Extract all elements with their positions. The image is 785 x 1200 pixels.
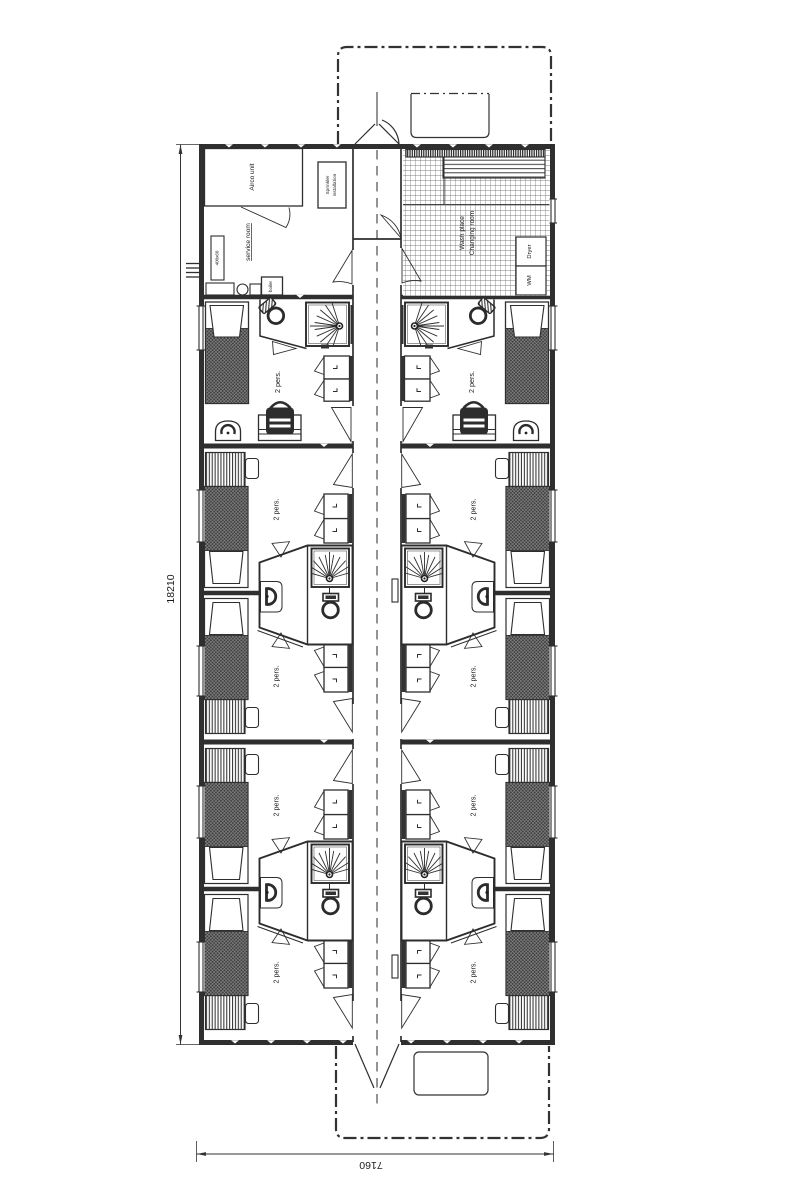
svg-text:2 pers.: 2 pers. [272, 666, 281, 688]
svg-text:2 pers.: 2 pers. [469, 962, 478, 984]
svg-text:2 pers.: 2 pers. [272, 962, 281, 984]
svg-text:2 pers.: 2 pers. [469, 666, 478, 688]
svg-text:18210: 18210 [165, 574, 177, 603]
svg-text:Airco unit: Airco unit [249, 163, 256, 190]
svg-text:2 pers.: 2 pers. [272, 795, 281, 817]
svg-text:Wash place: Wash place [459, 216, 466, 250]
svg-text:installation: installation [332, 173, 338, 196]
svg-text:Sprinkler: Sprinkler [325, 175, 331, 194]
svg-text:Changing room: Changing room [469, 211, 476, 255]
svg-text:2 pers.: 2 pers. [272, 499, 281, 521]
svg-text:2 pers.: 2 pers. [469, 499, 478, 521]
svg-text:Dryer: Dryer [527, 244, 533, 258]
svg-text:boiler: boiler [268, 281, 273, 293]
svg-text:WM: WM [527, 275, 533, 285]
svg-text:2 pers.: 2 pers. [273, 371, 282, 393]
svg-text:7160: 7160 [359, 1159, 383, 1171]
svg-text:2 pers.: 2 pers. [469, 795, 478, 817]
svg-text:400x60: 400x60 [215, 250, 220, 265]
svg-text:2 pers.: 2 pers. [467, 371, 476, 393]
svg-text:service room: service room [245, 223, 252, 261]
